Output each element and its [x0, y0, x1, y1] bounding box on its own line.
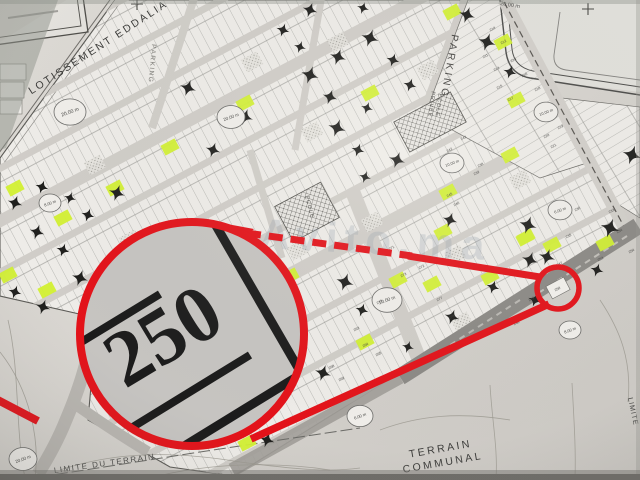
site-plan-photo: 20.00 m20.00 m10.00 m6.00 m10.00 m20.00 … — [0, 0, 640, 480]
photo-edges — [0, 0, 640, 480]
site-plan-svg: 20.00 m20.00 m10.00 m6.00 m10.00 m20.00 … — [0, 0, 640, 480]
